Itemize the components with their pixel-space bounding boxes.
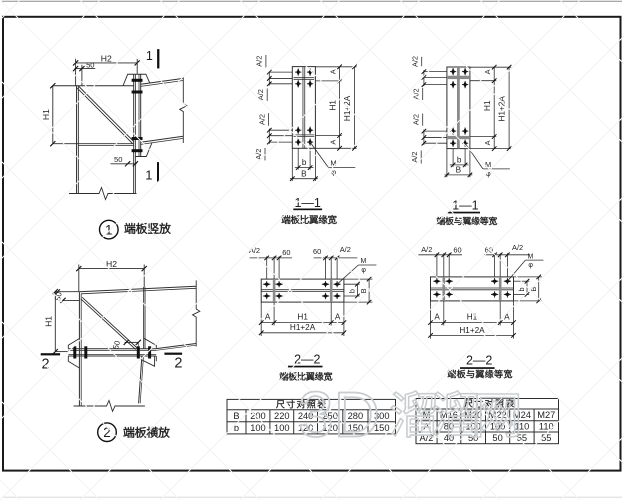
svg-text:1: 1 (146, 49, 153, 63)
svg-text:110: 110 (514, 422, 529, 432)
svg-text:1—1: 1—1 (294, 196, 320, 210)
svg-text:A/2: A/2 (255, 56, 264, 67)
svg-text:b: b (348, 289, 357, 293)
svg-text:100: 100 (250, 423, 266, 433)
svg-text:A/2: A/2 (512, 243, 523, 252)
svg-text:b: b (517, 287, 526, 291)
svg-text:1: 1 (145, 168, 152, 183)
svg-text:50: 50 (86, 61, 94, 70)
svg-text:H1+2A: H1+2A (459, 326, 485, 335)
svg-text:A: A (483, 140, 492, 145)
svg-text:M: M (527, 253, 533, 260)
svg-text:φ: φ (528, 262, 533, 269)
svg-text:B: B (456, 166, 462, 175)
svg-text:A/2: A/2 (411, 56, 420, 67)
svg-text:B: B (233, 411, 239, 421)
svg-text:1: 1 (105, 222, 113, 237)
svg-text:A/2: A/2 (410, 151, 419, 162)
svg-text:A: A (328, 69, 337, 74)
svg-text:60: 60 (313, 247, 321, 256)
svg-text:H1: H1 (467, 312, 478, 321)
svg-text:H1: H1 (297, 312, 308, 321)
svg-text:A/2: A/2 (412, 88, 421, 99)
svg-text:A: A (328, 140, 337, 145)
svg-text:b: b (234, 423, 239, 433)
svg-text:H2: H2 (101, 54, 112, 64)
svg-text:H1: H1 (41, 109, 51, 120)
svg-text:A: A (434, 312, 440, 321)
svg-text:A/2: A/2 (412, 114, 421, 125)
svg-text:60: 60 (282, 248, 290, 257)
svg-text:100: 100 (274, 423, 290, 433)
svg-text:M: M (360, 258, 366, 265)
svg-text:A: A (483, 69, 492, 74)
svg-text:φ: φ (361, 267, 366, 274)
svg-text:B: B (301, 170, 307, 179)
svg-text:60: 60 (485, 245, 493, 254)
svg-text:H1+2A: H1+2A (343, 95, 352, 121)
svg-text:110: 110 (539, 422, 554, 432)
svg-text:A/2: A/2 (256, 89, 265, 100)
svg-text:H1: H1 (483, 100, 492, 111)
svg-text:220: 220 (274, 411, 290, 421)
svg-text:M27: M27 (537, 410, 555, 420)
svg-text:1—1: 1—1 (452, 198, 478, 212)
svg-text:M24: M24 (513, 410, 531, 420)
svg-text:A: A (504, 312, 510, 321)
svg-text:2—2: 2—2 (466, 354, 492, 368)
svg-text:H1: H1 (44, 316, 54, 327)
svg-text:b: b (457, 156, 462, 165)
svg-text:A/2: A/2 (340, 245, 351, 254)
svg-text:2: 2 (41, 357, 49, 373)
svg-text:3D: 3D (298, 379, 380, 451)
svg-text:2—2: 2—2 (294, 353, 320, 367)
svg-text:2: 2 (174, 355, 182, 371)
svg-text:b: b (302, 158, 307, 167)
svg-text:H1: H1 (328, 100, 337, 111)
svg-text:50: 50 (492, 433, 502, 443)
svg-text:H1+2A: H1+2A (290, 323, 316, 332)
svg-text:60: 60 (453, 245, 461, 254)
svg-text:A/2: A/2 (421, 245, 432, 254)
svg-text:50: 50 (114, 155, 122, 164)
svg-text:A/2: A/2 (257, 114, 266, 125)
